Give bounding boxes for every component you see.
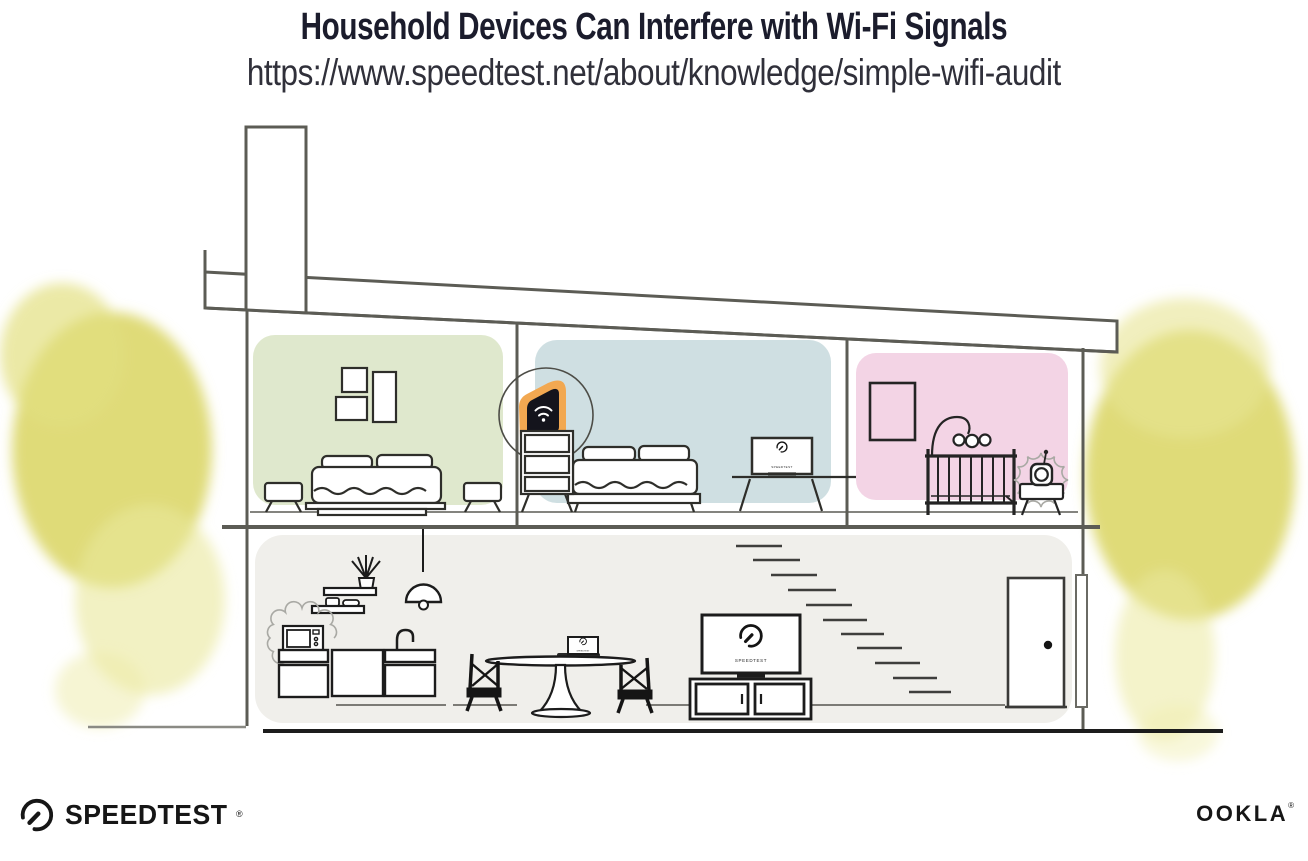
page-title: Household Devices Can Interfere with Wi-… xyxy=(0,6,1308,49)
picture-frame xyxy=(336,397,367,420)
ookla-wordmark: OOKLA xyxy=(1196,801,1288,826)
living-room-tv: SPEEDTEST xyxy=(690,615,811,719)
tv xyxy=(702,615,800,673)
source-url: https://www.speedtest.net/about/knowledg… xyxy=(0,52,1308,94)
speedtest-gauge-icon xyxy=(18,796,56,834)
picture-frame xyxy=(373,372,396,422)
speedtest-logo: SPEEDTEST® xyxy=(18,796,243,834)
bed xyxy=(312,467,441,503)
tree-left xyxy=(0,283,225,728)
tv-console xyxy=(690,679,811,719)
bed xyxy=(573,460,697,494)
monitor-screen-label: SPEEDTEST xyxy=(771,465,792,469)
laptop-screen-label: SPEEDTEST xyxy=(576,651,590,653)
downspout xyxy=(1076,575,1087,707)
house-illustration: SPEEDTEST xyxy=(0,0,1308,861)
cabinets xyxy=(279,650,435,697)
ookla-trademark: ® xyxy=(1288,801,1294,810)
pillow xyxy=(639,446,689,461)
mobile-toy xyxy=(980,435,991,446)
picture-frame xyxy=(342,368,367,392)
microwave xyxy=(283,626,323,652)
tree-right xyxy=(1085,298,1295,761)
side-table xyxy=(1020,484,1063,499)
speedtest-trademark: ® xyxy=(236,809,243,819)
door-knob xyxy=(1044,641,1052,649)
cup xyxy=(326,598,339,606)
mobile-toy xyxy=(966,435,978,447)
mobile-toy xyxy=(954,435,965,446)
header: Household Devices Can Interfere with Wi-… xyxy=(0,6,1308,94)
nightstand xyxy=(265,483,302,501)
nightstand xyxy=(464,483,501,501)
speedtest-wordmark: SPEEDTEST xyxy=(65,799,227,831)
chimney xyxy=(246,127,306,314)
wall-shelf xyxy=(324,588,376,595)
front-door xyxy=(1005,578,1067,707)
poster: SPEEDTEST xyxy=(0,0,1308,861)
tv-screen-label: SPEEDTEST xyxy=(735,658,767,663)
crib xyxy=(925,449,1017,515)
ookla-logo: OOKLA® xyxy=(1196,801,1294,827)
